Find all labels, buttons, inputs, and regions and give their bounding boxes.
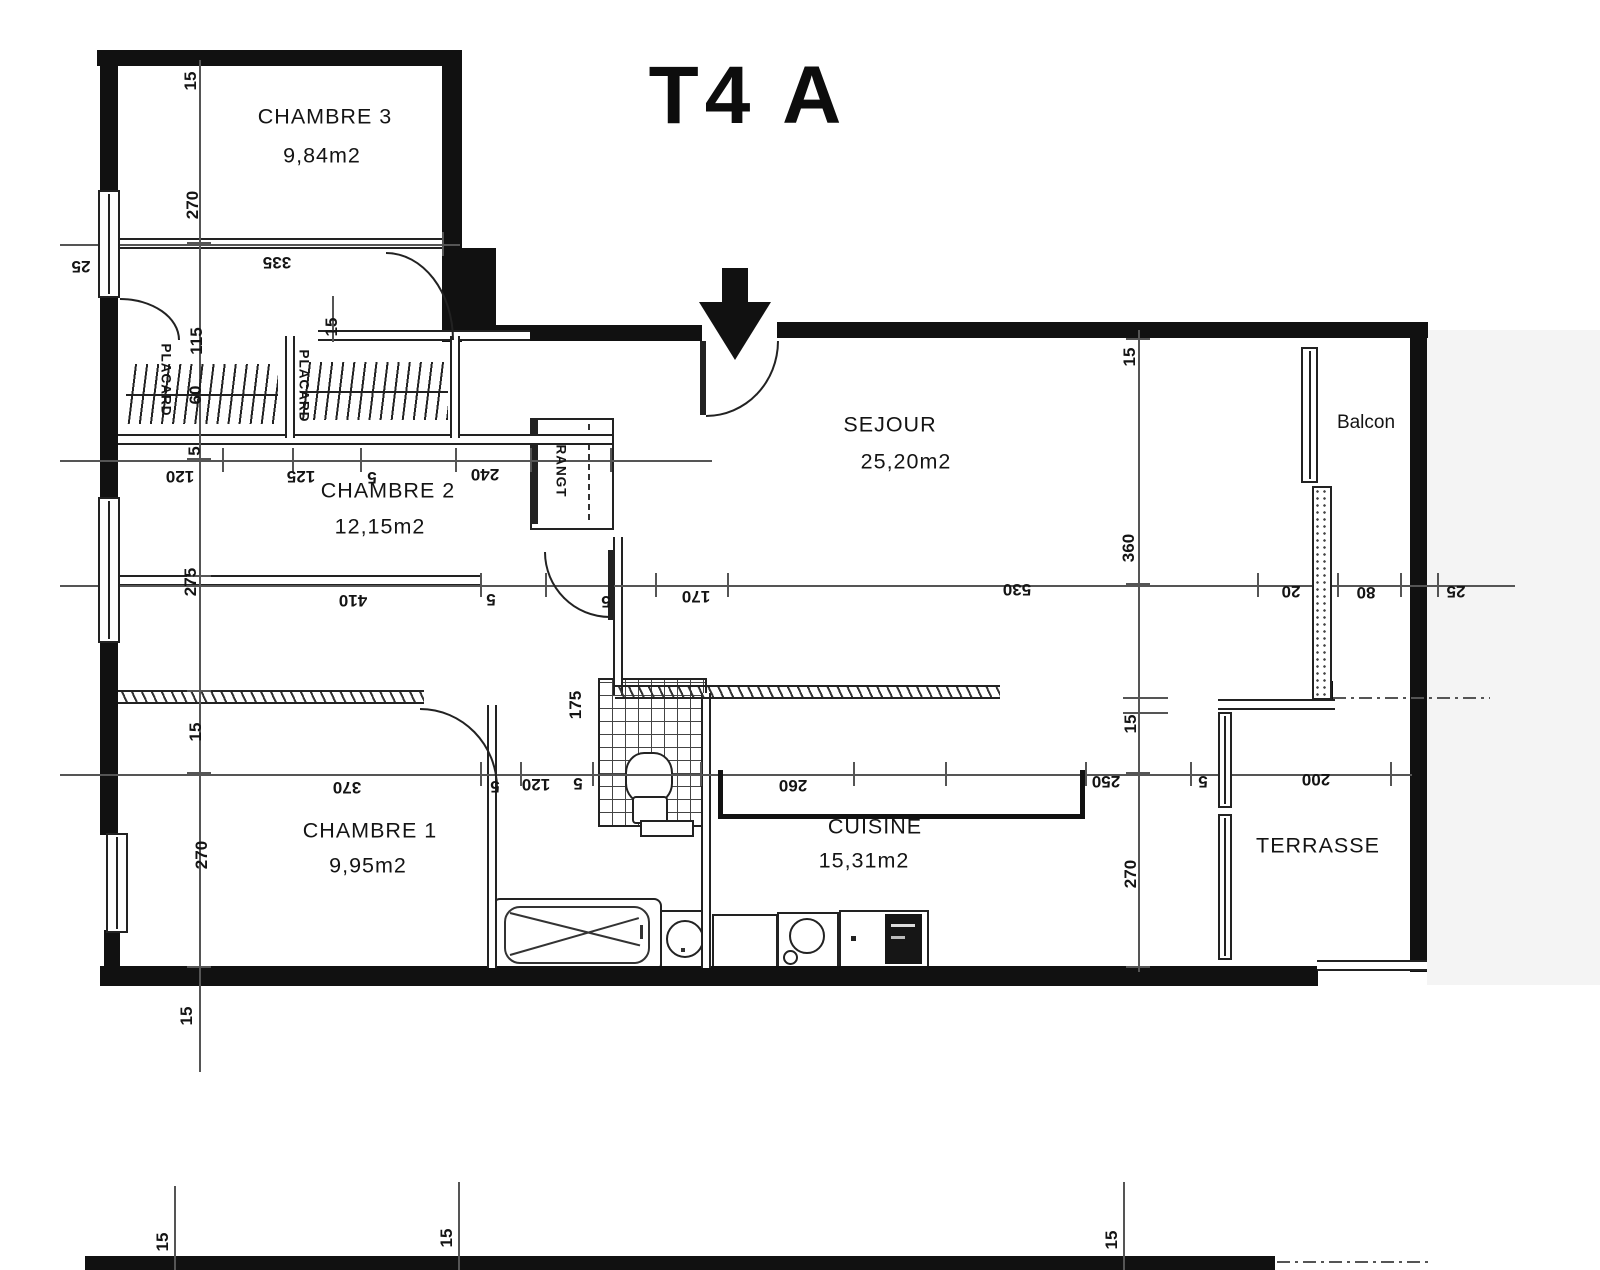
door-arc: [706, 341, 779, 417]
dimension-line: [1123, 1182, 1125, 1270]
washbasin-bowl-icon: [666, 920, 704, 958]
thin-wall: [1317, 960, 1427, 971]
thin-wall: [487, 705, 497, 968]
dimension-tick: [1085, 762, 1087, 786]
window: [1301, 347, 1318, 483]
oven-handle-icon: [891, 924, 915, 927]
dimension-label: 270: [183, 191, 203, 219]
room-label: CHAMBRE 2: [321, 479, 455, 504]
room-label: 9,84m2: [283, 144, 361, 169]
dimension-label: 15: [322, 318, 342, 337]
window: [1218, 814, 1232, 960]
closet-label: PLACARD: [159, 344, 174, 417]
dash-dot-line: [1277, 1261, 1430, 1263]
dimension-label: 120: [166, 466, 194, 486]
dimension-tick: [455, 448, 457, 472]
dimension-tick: [592, 762, 594, 786]
thin-wall: [613, 537, 623, 695]
dimension-tick: [1190, 762, 1192, 786]
thin-wall: [118, 434, 612, 445]
dimension-tick: [945, 762, 947, 786]
dimension-line: [60, 774, 1412, 776]
dimension-label: 5: [573, 773, 582, 793]
dimension-line: [1123, 697, 1168, 699]
dimension-tick: [1257, 573, 1259, 597]
dimension-label: 5: [185, 446, 205, 455]
dimension-label: 60: [186, 386, 206, 405]
dimension-label: 275: [181, 568, 201, 596]
floor-plan: T4 A CHAMBRE 39,84m2CHAMBRE 212,15m2SEJO…: [0, 0, 1600, 1270]
dimension-label: 5: [486, 589, 495, 609]
room-label: 25,20m2: [861, 450, 952, 475]
dimension-label: 360: [1119, 534, 1139, 562]
dimension-label: 15: [177, 1007, 197, 1026]
dimension-tick: [530, 448, 532, 472]
scan-shade: [1427, 330, 1600, 985]
dimension-label: 5: [490, 776, 499, 796]
dimension-tick: [545, 573, 547, 597]
bathtub-faucet-icon: [640, 925, 643, 939]
door-arc: [120, 298, 180, 340]
wall-segment: [100, 966, 1318, 986]
washbasin-drain-icon: [681, 948, 685, 952]
room-label: CHAMBRE 3: [258, 105, 392, 130]
room-label: TERRASSE: [1256, 834, 1380, 859]
dimension-tick: [1437, 573, 1439, 597]
dimension-label: 5: [601, 591, 610, 611]
dimension-label: 25: [72, 256, 91, 276]
room-label: Balcon: [1337, 412, 1395, 434]
room-label: 9,95m2: [329, 854, 407, 879]
thin-wall: [1218, 699, 1335, 710]
dimension-label: 240: [471, 464, 499, 484]
dimension-tick: [1126, 338, 1150, 340]
dimension-tick: [1337, 573, 1339, 597]
room-label: CHAMBRE 1: [303, 819, 437, 844]
dimension-label: 15: [1120, 348, 1140, 367]
closet-label: PLACARD: [297, 350, 312, 423]
hatched-wall: [615, 685, 1000, 699]
dimension-tick: [727, 573, 729, 597]
counter-outline: [718, 770, 723, 818]
door-leaf: [700, 341, 706, 415]
dimension-tick: [1126, 772, 1150, 774]
dimension-label: 370: [333, 777, 361, 797]
oven-block: [885, 914, 922, 964]
dimension-label: 530: [1003, 579, 1031, 599]
dimension-label: 335: [263, 252, 291, 272]
entrance-arrow-stem: [722, 268, 748, 304]
wall-segment: [85, 1256, 1275, 1270]
dimension-tick: [187, 458, 211, 460]
dimension-label: 260: [779, 775, 807, 795]
door-arc: [544, 552, 610, 618]
dimension-label: 20: [1282, 581, 1301, 601]
dimension-label: 15: [186, 723, 206, 742]
wall-segment: [97, 50, 459, 66]
window: [106, 833, 128, 933]
dimension-label: 250: [1092, 771, 1120, 791]
dimension-label: 15: [181, 72, 201, 91]
dimension-label: 175: [566, 691, 586, 719]
kitchen-counter: [712, 914, 778, 972]
dimension-tick: [187, 772, 211, 774]
counter-outline: [1080, 770, 1085, 818]
thin-wall: [285, 336, 295, 438]
dimension-tick: [853, 762, 855, 786]
room-label: SEJOUR: [843, 413, 936, 438]
dimension-tick: [1400, 573, 1402, 597]
dimension-label: 15: [437, 1229, 457, 1248]
room-label: 12,15m2: [335, 515, 426, 540]
thin-wall: [450, 336, 460, 438]
dimension-label: 125: [287, 466, 315, 486]
dimension-tick: [442, 232, 444, 256]
concrete-pier: [1312, 486, 1332, 700]
dimension-label: 120: [522, 774, 550, 794]
dimension-line: [60, 460, 712, 462]
plan-title: T4 A: [649, 49, 848, 143]
dimension-line: [174, 1186, 176, 1270]
dimension-label: 80: [1357, 582, 1376, 602]
wall-segment: [1410, 322, 1427, 972]
dash-dot-line: [1333, 697, 1490, 699]
dimension-tick: [360, 448, 362, 472]
dimension-label: 170: [682, 586, 710, 606]
dimension-tick: [1126, 966, 1150, 968]
kitchen-sink-bowl-icon: [789, 918, 825, 954]
window: [98, 497, 120, 643]
dimension-label: 5: [1198, 771, 1207, 791]
wall-segment: [100, 643, 118, 835]
dimension-tick: [610, 448, 612, 472]
closet-label: RANGT: [554, 445, 569, 498]
dimension-tick: [187, 966, 211, 968]
dimension-tick: [222, 448, 224, 472]
dimension-label: 15: [153, 1233, 173, 1252]
dimension-label: 115: [187, 327, 207, 354]
dimension-tick: [655, 573, 657, 597]
kitchen-sink-drain-icon: [783, 950, 798, 965]
dimension-label: 25: [1447, 581, 1466, 601]
wall-segment: [777, 322, 1428, 338]
wall-segment: [100, 50, 118, 192]
dimension-line: [458, 1182, 460, 1270]
wall-segment: [100, 298, 118, 500]
dimension-tick: [480, 573, 482, 597]
dimension-label: 200: [1302, 769, 1330, 789]
wall-segment: [462, 248, 496, 334]
dimension-label: 410: [339, 590, 367, 610]
dimension-tick: [187, 690, 211, 692]
dimension-label: 270: [192, 841, 212, 869]
window: [98, 190, 120, 298]
room-label: CUISINE: [828, 815, 922, 840]
hatched-wall: [118, 690, 424, 704]
dimension-tick: [1390, 762, 1392, 786]
room-label: 15,31m2: [819, 849, 910, 874]
dimension-label: 5: [367, 467, 376, 487]
oven-display-icon: [891, 936, 905, 939]
window: [1218, 712, 1232, 808]
dimension-line: [60, 244, 460, 246]
cooker-knob-icon: [851, 936, 856, 941]
dimension-tick: [187, 242, 211, 244]
dimension-label: 15: [1102, 1231, 1122, 1250]
dimension-tick: [1126, 583, 1150, 585]
dimension-tick: [700, 762, 702, 786]
thin-wall: [701, 693, 711, 968]
bathroom-door-leaf: [640, 820, 694, 837]
closet-hatch: [300, 362, 448, 420]
dimension-label: 15: [1121, 715, 1141, 734]
dimension-label: 270: [1121, 860, 1141, 888]
